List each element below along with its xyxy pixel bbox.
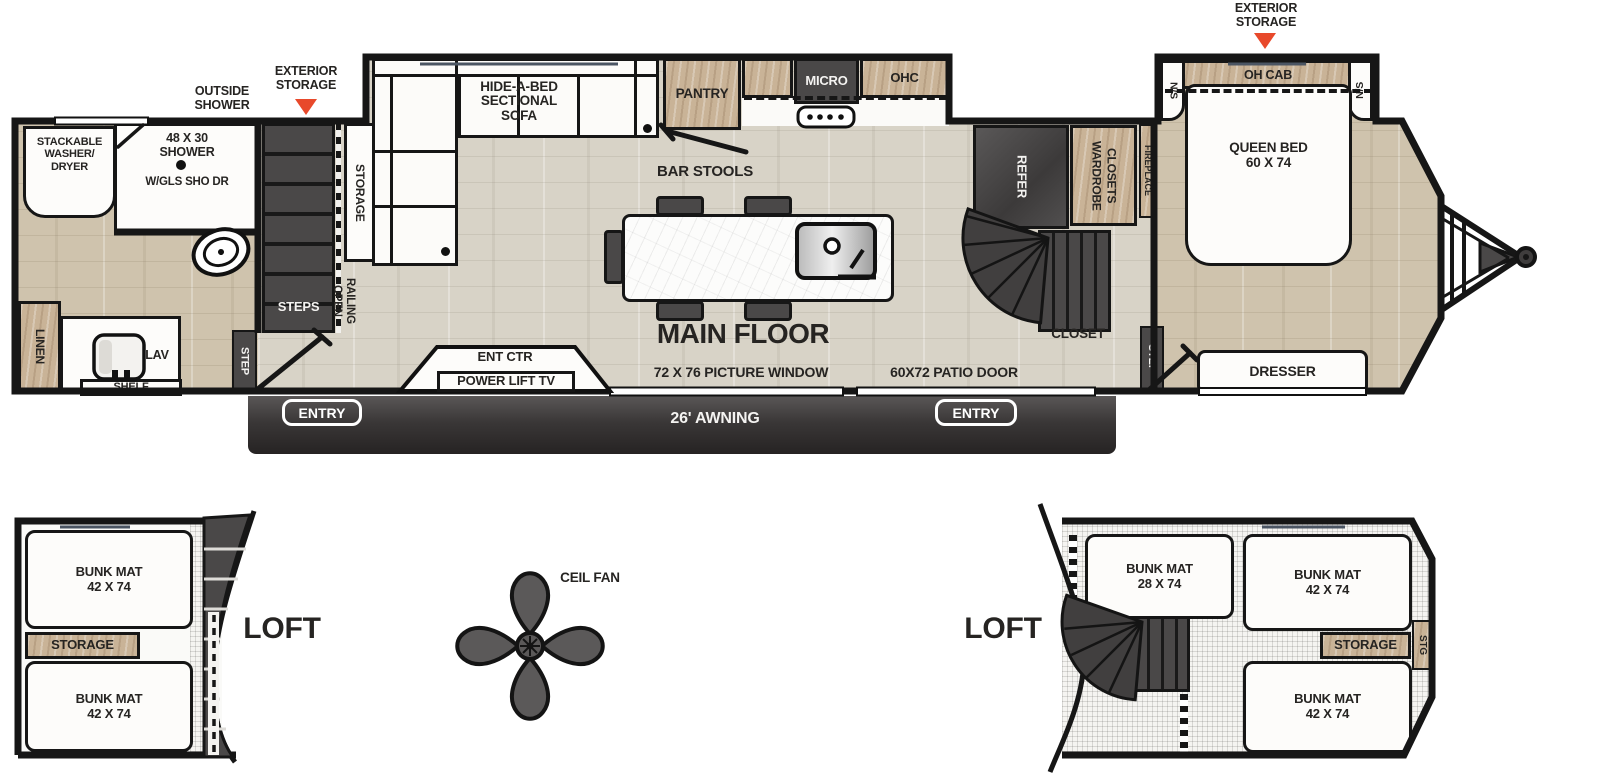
exterior-storage-arrow-front [1254, 33, 1276, 49]
main-floor-label: MAIN FLOOR [648, 318, 838, 349]
awning-label: 26' AWNING [655, 410, 775, 428]
shelf: SHELF [80, 379, 182, 396]
left-loft-storage: STORAGE [25, 632, 140, 659]
trailer-tongue [1443, 207, 1535, 309]
microwave-label: MICRO [805, 74, 847, 89]
dresser: DRESSER [1197, 350, 1368, 394]
sofa-cupholder [441, 247, 450, 256]
shower-label: 48 X 30 SHOWER [120, 131, 254, 159]
exterior-storage-arrow-mid [295, 99, 317, 115]
overhead-cabinet-label: OHC [890, 71, 918, 86]
storage-label: STORAGE [51, 638, 114, 653]
right-loft-bunk-small: BUNK MAT 28 X 74 [1085, 534, 1234, 619]
linen-cabinet: LINEN [18, 301, 61, 392]
rv-floorplan: 26' AWNING ENTRY ENTRY OUTSIDE SHOWER EX… [0, 0, 1600, 773]
kitchen-island [622, 214, 894, 302]
sofa-seam [374, 74, 657, 77]
washer-dryer-label: STACKABLE WASHER/ DRYER [26, 136, 113, 173]
lav-label: LAV [136, 348, 178, 362]
fireplace-label: FIREPLACE [1143, 145, 1153, 196]
sofa-chaise [372, 58, 458, 266]
bunk-label: BUNK MAT 42 X 74 [1294, 568, 1361, 597]
right-loft-title: LOFT [957, 612, 1049, 646]
linen-label: LINEN [33, 329, 46, 364]
right-loft-bunk-bottom: BUNK MAT 42 X 74 [1243, 661, 1412, 753]
bar-stool [604, 230, 624, 284]
sofa-seam [374, 150, 458, 153]
bar-stool [656, 196, 704, 216]
picture-window-label: 72 X 76 PICTURE WINDOW [630, 365, 852, 381]
loft-steps-label: STEPS [264, 300, 333, 315]
bunk-label: BUNK MAT 28 X 74 [1126, 562, 1193, 591]
bedroom-step-label: STEP [1146, 344, 1158, 372]
right-loft-storage: STORAGE [1320, 632, 1411, 659]
right-loft-bunk-top: BUNK MAT 42 X 74 [1243, 534, 1412, 631]
wardrobe-closets: WARDROBE CLOSETS [1070, 125, 1137, 226]
exterior-storage-callout-mid: EXTERIOR STORAGE [261, 64, 351, 92]
stg-label: STG [1417, 635, 1428, 655]
refrigerator: REFER [973, 125, 1069, 229]
right-loft-railing [1069, 535, 1077, 615]
right-loft-stg: STG [1412, 620, 1433, 670]
overhead-cab-line [744, 96, 947, 100]
overhead-cabinet: OHC [860, 58, 949, 98]
stair-storage-label: STORAGE [353, 164, 366, 222]
straight-stairs [1038, 230, 1111, 332]
oh-cab-label: OH CAB [1244, 68, 1292, 82]
sofa-label: HIDE-A-BED SECTIONAL SOFA [452, 80, 586, 123]
stair-storage-cabinet: STORAGE [344, 123, 375, 262]
refrigerator-label: REFER [1014, 155, 1029, 198]
patio-door-label: 60X72 PATIO DOOR [884, 365, 1024, 381]
bath-step-label: STEP [238, 347, 250, 375]
bath-step: STEP [232, 330, 257, 392]
storage-label: STORAGE [1334, 638, 1397, 653]
pantry: PANTRY [663, 58, 741, 130]
left-loft-title: LOFT [236, 612, 328, 646]
ceiling-fan-label: CEIL FAN [548, 570, 632, 585]
bunk-label: BUNK MAT 42 X 74 [76, 565, 143, 594]
oh-cab-line [1165, 89, 1372, 93]
exterior-storage-callout-front: EXTERIOR STORAGE [1221, 1, 1311, 29]
sofa-seam [374, 205, 458, 208]
left-loft-catwalk [190, 524, 210, 752]
sofa-cupholder [643, 124, 652, 133]
open-railing-label: OPEN RAILING [330, 258, 356, 344]
dresser-label: DRESSER [1249, 364, 1315, 380]
fireplace: FIREPLACE [1139, 124, 1157, 218]
shower-drain [176, 160, 186, 170]
sofa-seam [634, 60, 637, 136]
left-loft-bunk-bottom: BUNK MAT 42 X 74 [25, 661, 193, 752]
entry-door-right: ENTRY [935, 399, 1017, 426]
right-loft-stairs [1133, 616, 1190, 692]
bar-stools-label: BAR STOOLS [650, 164, 760, 181]
sofa-seam [390, 77, 393, 264]
queen-bed [1185, 84, 1352, 266]
closet-label: CLOSET [1038, 326, 1118, 341]
shelf-label: SHELF [113, 381, 148, 393]
pantry-label: PANTRY [676, 86, 729, 101]
ceiling-fan-icon [457, 573, 603, 719]
left-loft-bunk-top: BUNK MAT 42 X 74 [25, 530, 193, 629]
power-lift-tv: POWER LIFT TV [437, 371, 575, 392]
shower-door-label: W/GLS SHO DR [118, 176, 256, 189]
power-lift-tv-label: POWER LIFT TV [457, 374, 555, 389]
wardrobe-label: WARDROBE CLOSETS [1089, 141, 1119, 211]
entry-door-left: ENTRY [282, 399, 362, 426]
hitch-ball [1517, 248, 1535, 266]
bunk-label: BUNK MAT 42 X 74 [1294, 692, 1361, 721]
bunk-label: BUNK MAT 42 X 74 [76, 692, 143, 721]
outside-shower-callout: OUTSIDE SHOWER [183, 84, 261, 112]
bedroom-step: STEP [1140, 326, 1164, 390]
bar-stool [744, 196, 792, 216]
kitchen-cabinet [742, 58, 793, 98]
queen-bed-label: QUEEN BED 60 X 74 [1190, 140, 1347, 170]
ent-ctr-label: ENT CTR [440, 350, 570, 365]
nose-floor [1398, 121, 1443, 391]
right-loft-railing [1180, 694, 1188, 756]
